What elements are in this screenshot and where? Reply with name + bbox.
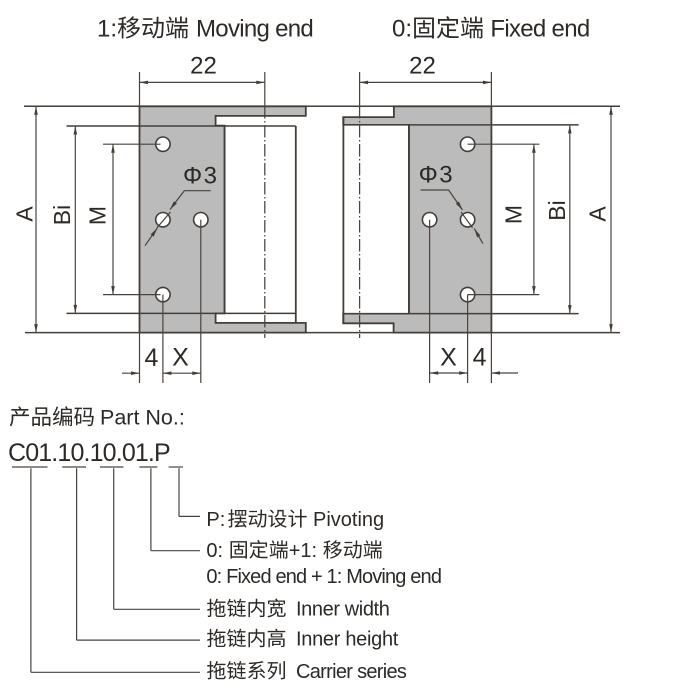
svg-text:X: X <box>440 344 457 372</box>
svg-text:Inner width: Inner width <box>296 599 389 621</box>
svg-text:Φ3: Φ3 <box>183 163 219 190</box>
svg-text:4: 4 <box>145 344 159 372</box>
svg-text:Inner height: Inner height <box>296 629 399 651</box>
svg-text:Moving end: Moving end <box>196 16 313 43</box>
svg-text:22: 22 <box>409 53 436 80</box>
svg-text:Bi: Bi <box>49 205 75 225</box>
svg-text:P:: P: <box>206 509 225 531</box>
svg-text:Carrier series: Carrier series <box>296 661 407 683</box>
svg-text:Part No.:: Part No.: <box>100 406 185 430</box>
svg-text:0: Fixed end + 1: Moving end: 0: Fixed end + 1: Moving end <box>206 566 441 588</box>
svg-text:A: A <box>585 206 611 222</box>
svg-text:Bi: Bi <box>544 200 570 220</box>
svg-text:Φ3: Φ3 <box>419 162 455 189</box>
svg-text:0:: 0: <box>392 16 412 43</box>
svg-text:+1:: +1: <box>289 540 317 562</box>
svg-text:22: 22 <box>190 53 217 80</box>
svg-text:1:: 1: <box>97 16 117 43</box>
svg-text:C01.10.10.01.P: C01.10.10.01.P <box>8 439 170 467</box>
svg-text:0:: 0: <box>206 540 223 562</box>
svg-text:M: M <box>501 205 527 224</box>
svg-text:4: 4 <box>473 344 487 372</box>
svg-text:X: X <box>172 344 189 372</box>
svg-text:A: A <box>12 206 38 222</box>
svg-text:M: M <box>85 206 111 225</box>
svg-text:Pivoting: Pivoting <box>313 509 384 531</box>
svg-text:Fixed end: Fixed end <box>490 16 589 43</box>
